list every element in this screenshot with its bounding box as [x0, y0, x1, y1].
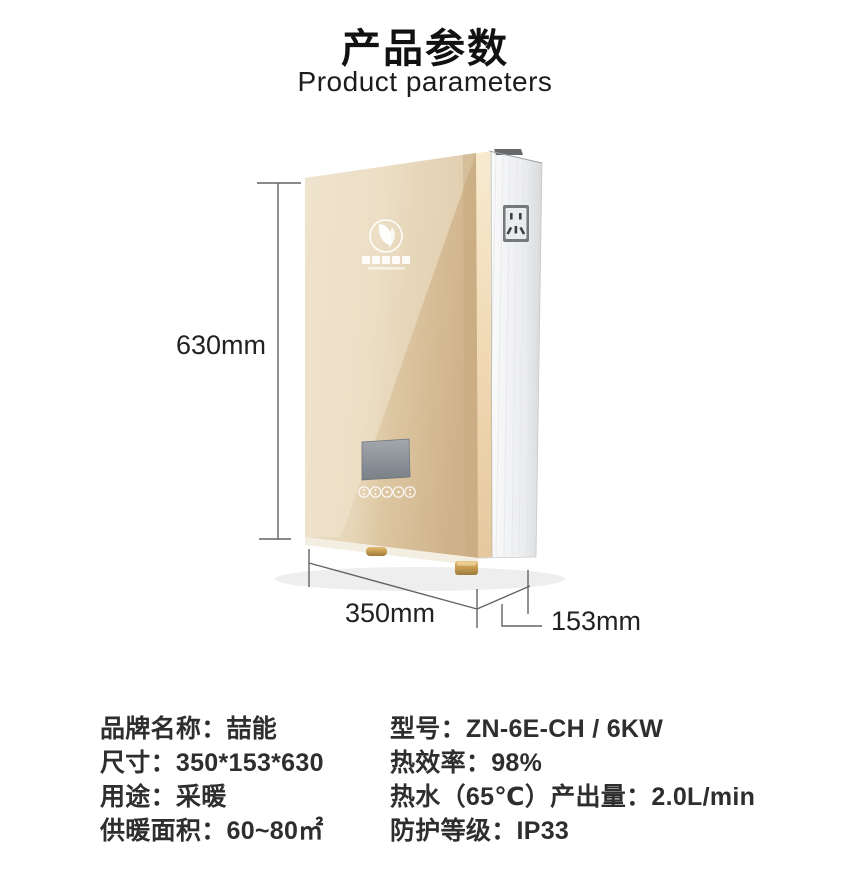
front-edge-shade	[463, 153, 478, 558]
display-screen	[362, 439, 410, 480]
logo-text-bars	[362, 256, 410, 270]
height-dimension-label: 630mm	[176, 330, 266, 361]
product-figure	[0, 0, 850, 670]
bottom-pipe	[366, 547, 387, 556]
specs-left-column: 品牌名称：喆能 尺寸：350*153*630 用途：采暖 供暖面积：60~80㎡	[100, 712, 324, 848]
socket-icon	[503, 205, 529, 242]
spec-protection-rating: 防护等级：IP33	[390, 814, 755, 848]
spec-heating-area: 供暖面积：60~80㎡	[100, 814, 324, 848]
device-shadow	[275, 567, 565, 591]
depth-dimension-label: 153mm	[551, 606, 641, 637]
product-parameters-page: 产品参数 Product parameters	[0, 0, 850, 888]
spec-usage: 用途：采暖	[100, 780, 324, 814]
bottom-foot	[455, 561, 478, 575]
spec-hot-water-output: 热水（65℃）产出量：2.0L/min	[390, 780, 755, 814]
width-dimension-label: 350mm	[345, 598, 435, 629]
top-cap	[494, 149, 523, 155]
spec-model: 型号：ZN-6E-CH / 6KW	[390, 712, 755, 746]
spec-size: 尺寸：350*153*630	[100, 746, 324, 780]
heater-device	[305, 149, 542, 575]
spec-brand-name: 品牌名称：喆能	[100, 712, 324, 746]
specs-right-column: 型号：ZN-6E-CH / 6KW 热效率：98% 热水（65℃）产出量：2.0…	[390, 712, 755, 848]
spec-thermal-efficiency: 热效率：98%	[390, 746, 755, 780]
